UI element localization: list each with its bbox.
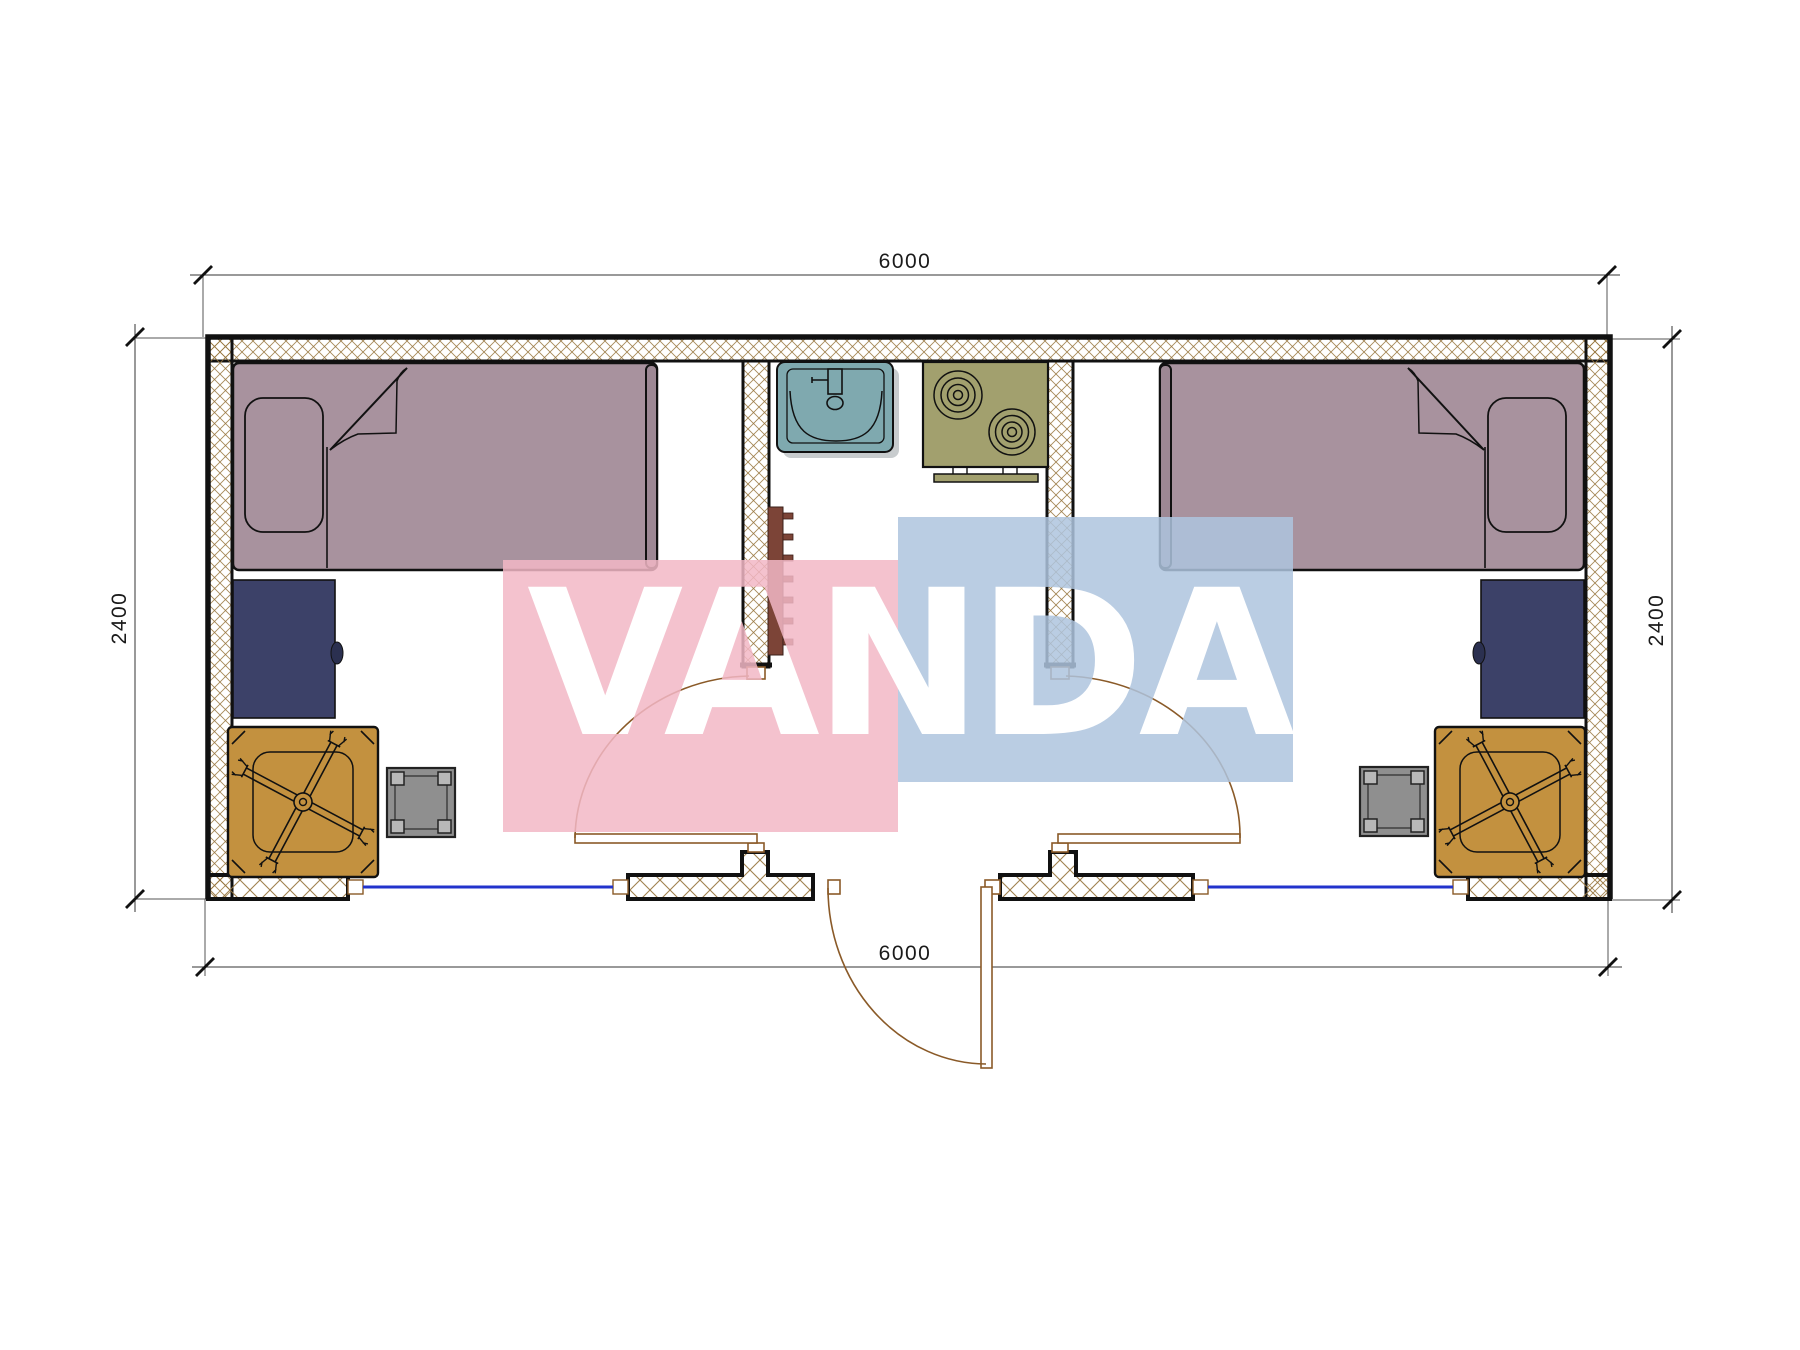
desk-right-knob [1473,642,1485,664]
bedroom-door-right-leaf [1058,834,1240,843]
faucet [828,369,842,394]
dimension-top [190,266,1620,337]
side-table-left [387,768,455,837]
wall-right [1586,337,1610,899]
desk-right-top [1481,580,1584,718]
sink-drain-knob [827,397,843,410]
stove-handle [934,474,1038,482]
windows [348,880,1468,894]
dimension-left-label: 2400 [108,592,131,645]
dimension-right-label: 2400 [1645,594,1668,647]
chair-right [1406,698,1614,906]
entry-door-swing [828,888,986,1064]
floor-plan-page: VANDA 6000 6000 2400 2400 [0,0,1800,1350]
bed-left-footboard [646,365,657,568]
sink [777,362,899,458]
wall-bottom-segment-d [1468,875,1610,899]
entry-door-leaf [981,887,992,1068]
watermark-pink-block [503,560,898,832]
desk-left [233,580,343,718]
chair-left [199,698,407,906]
desk-left-knob [331,642,343,664]
wall-top [208,337,1610,361]
desk-left-top [233,580,335,718]
bed-left-pillow [245,398,323,532]
stove [923,362,1048,482]
bedroom-door-left-leaf [575,834,757,843]
bed-right-pillow [1488,398,1566,532]
watermark-blue-block [898,517,1293,782]
watermark [503,517,1293,832]
dimension-left [126,324,208,912]
side-table-right [1360,767,1428,836]
dimension-top-label: 6000 [879,250,932,273]
bed-left [233,363,657,570]
desk-right [1473,580,1584,718]
wall-bottom-segment-b [628,852,813,899]
wall-bottom-segment-c [1000,852,1193,899]
wall-bottom-segment-a [208,875,348,899]
floor-plan-drawing: VANDA 6000 6000 2400 2400 [0,0,1800,1350]
dimension-bottom-label: 6000 [879,942,932,965]
entry-door [828,880,1000,1068]
